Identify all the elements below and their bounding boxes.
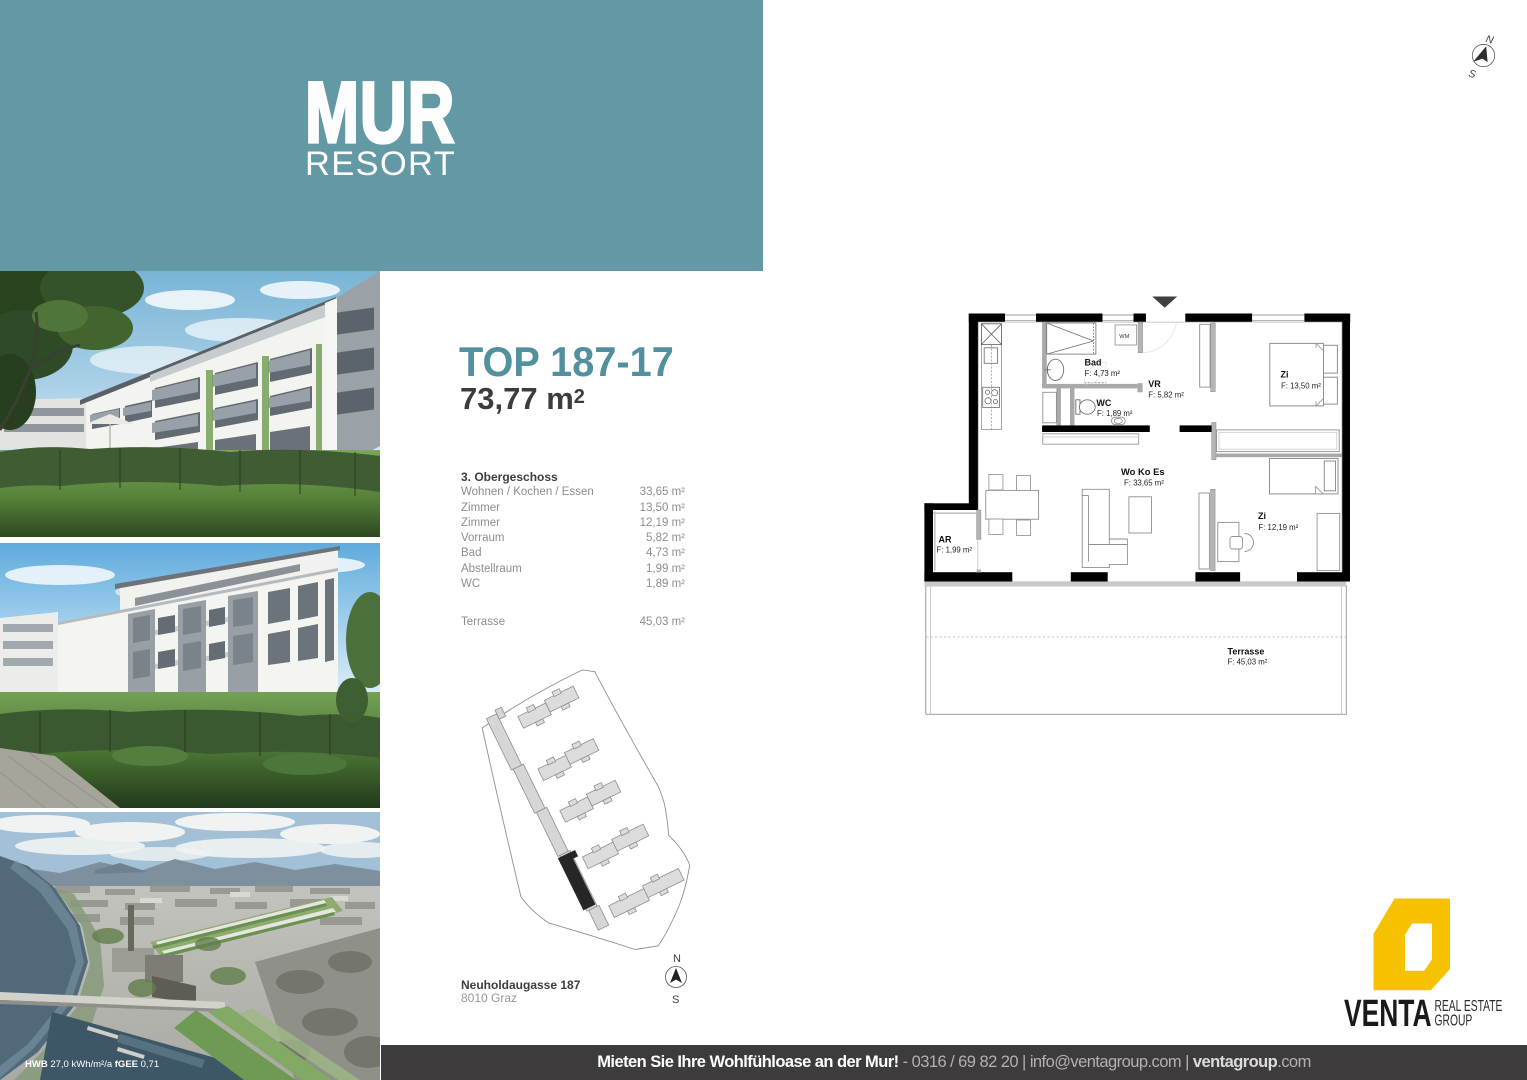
svg-text:F: 1,99 m²: F: 1,99 m² xyxy=(937,546,973,555)
svg-text:VENTA: VENTA xyxy=(1344,991,1432,1034)
svg-text:HWB 27,0 kWh/m²/a fGEE 0,71: HWB 27,0 kWh/m²/a fGEE 0,71 xyxy=(25,1059,159,1070)
svg-text:F: 4,73 m²: F: 4,73 m² xyxy=(1085,369,1121,378)
svg-text:Zi: Zi xyxy=(1281,370,1289,380)
svg-text:GROUP: GROUP xyxy=(1435,1011,1473,1029)
svg-text:S: S xyxy=(1467,68,1477,81)
svg-text:F: 45,03 m²: F: 45,03 m² xyxy=(1228,658,1268,667)
svg-text:S: S xyxy=(672,994,679,1006)
svg-text:Bad: Bad xyxy=(1085,358,1102,368)
svg-text:AR: AR xyxy=(939,535,952,545)
svg-text:F: 12,19 m²: F: 12,19 m² xyxy=(1258,523,1298,532)
svg-text:Zi: Zi xyxy=(1258,511,1266,521)
svg-text:Wo Ko Es: Wo Ko Es xyxy=(1121,466,1165,477)
svg-text:N: N xyxy=(673,953,681,965)
svg-text:F: 13,50 m²: F: 13,50 m² xyxy=(1281,382,1321,391)
svg-text:WC: WC xyxy=(1096,398,1111,408)
svg-text:F: 1,89 m²: F: 1,89 m² xyxy=(1097,409,1133,418)
svg-text:F: 33,65 m²: F: 33,65 m² xyxy=(1124,479,1164,488)
svg-text:WM: WM xyxy=(1119,334,1129,340)
svg-text:F: 5,82 m²: F: 5,82 m² xyxy=(1148,390,1184,399)
svg-text:VR: VR xyxy=(1148,379,1161,389)
svg-text:Terrasse: Terrasse xyxy=(1228,647,1265,657)
